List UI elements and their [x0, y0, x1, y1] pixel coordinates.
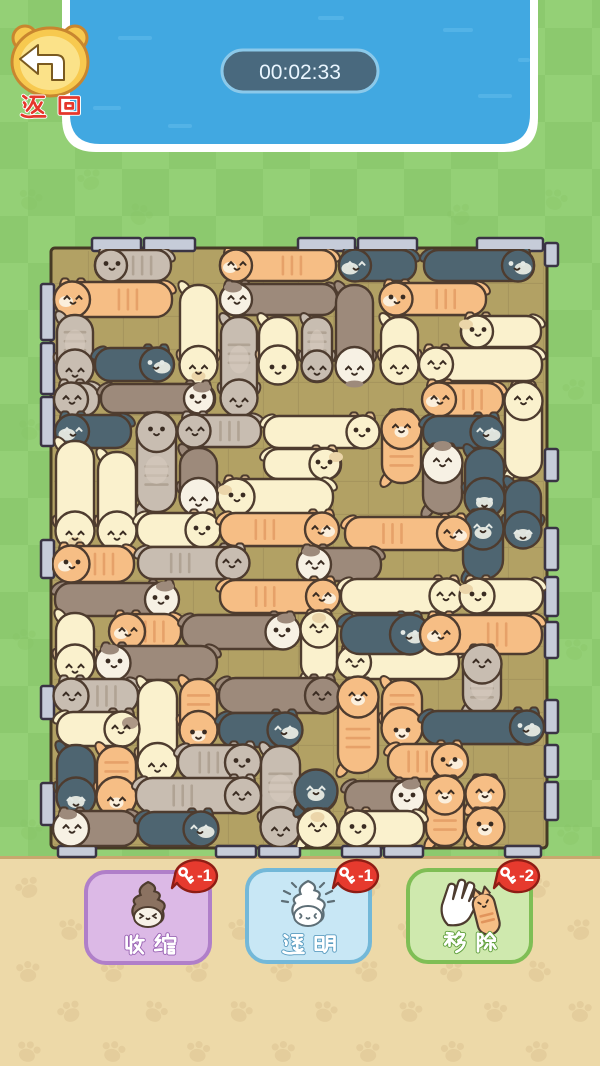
- svg-text:-2: -2: [519, 866, 534, 885]
- svg-text:-1: -1: [358, 866, 373, 885]
- svg-text:-1: -1: [197, 866, 212, 885]
- svg-text:00:02:33: 00:02:33: [259, 61, 341, 84]
